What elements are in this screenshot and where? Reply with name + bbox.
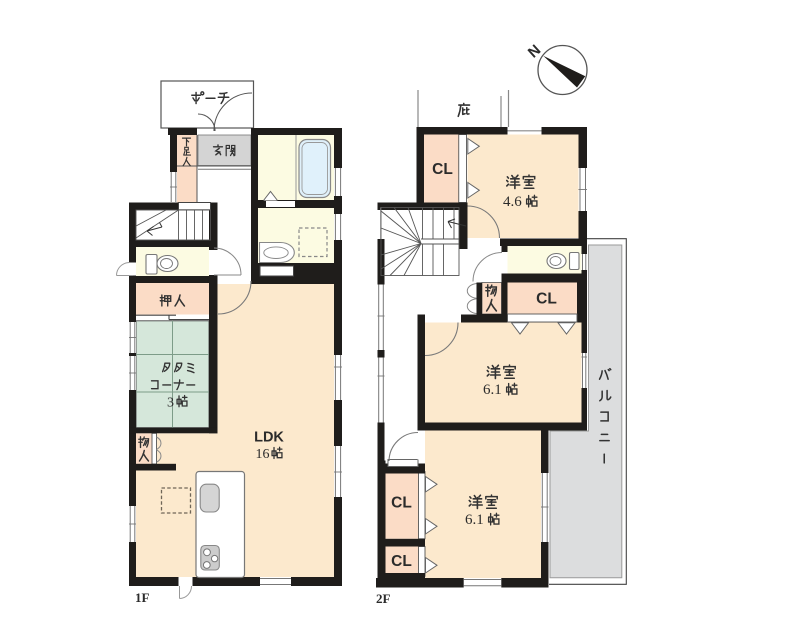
svg-text:6.1: 6.1: [465, 512, 484, 528]
svg-text:CL: CL: [432, 161, 453, 178]
svg-text:16: 16: [256, 447, 270, 462]
svg-text:2F: 2F: [376, 591, 391, 606]
svg-text:LDK: LDK: [254, 430, 284, 446]
svg-text:4.6: 4.6: [503, 194, 522, 210]
svg-text:CL: CL: [536, 291, 557, 308]
svg-text:6.1: 6.1: [483, 382, 502, 398]
svg-text:3: 3: [167, 396, 174, 411]
svg-text:CL: CL: [391, 553, 412, 570]
svg-text:CL: CL: [391, 495, 412, 512]
svg-text:1F: 1F: [135, 590, 150, 605]
